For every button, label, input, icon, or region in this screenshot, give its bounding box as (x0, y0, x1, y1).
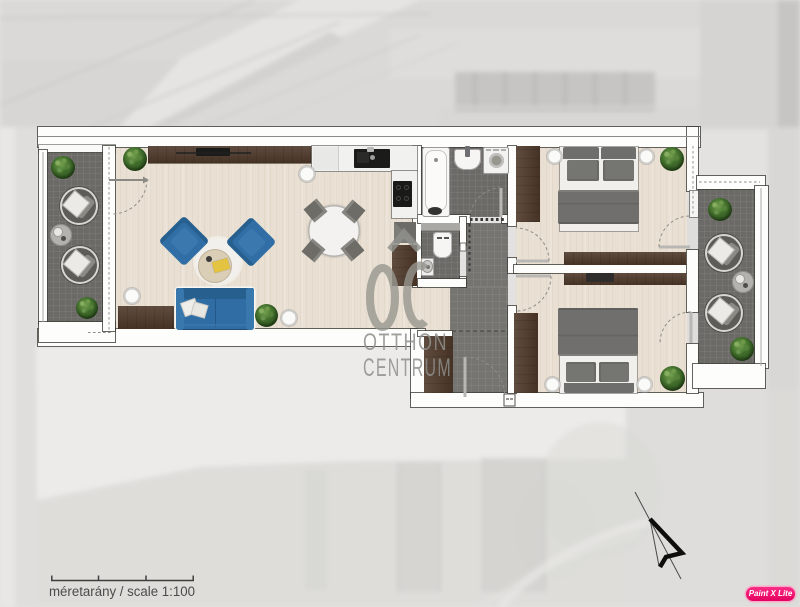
svg-text:CENTRUM: CENTRUM (363, 354, 452, 382)
svg-text:OTTHON: OTTHON (363, 329, 448, 356)
svg-text:méretarány / scale 1:100: méretarány / scale 1:100 (49, 584, 195, 600)
